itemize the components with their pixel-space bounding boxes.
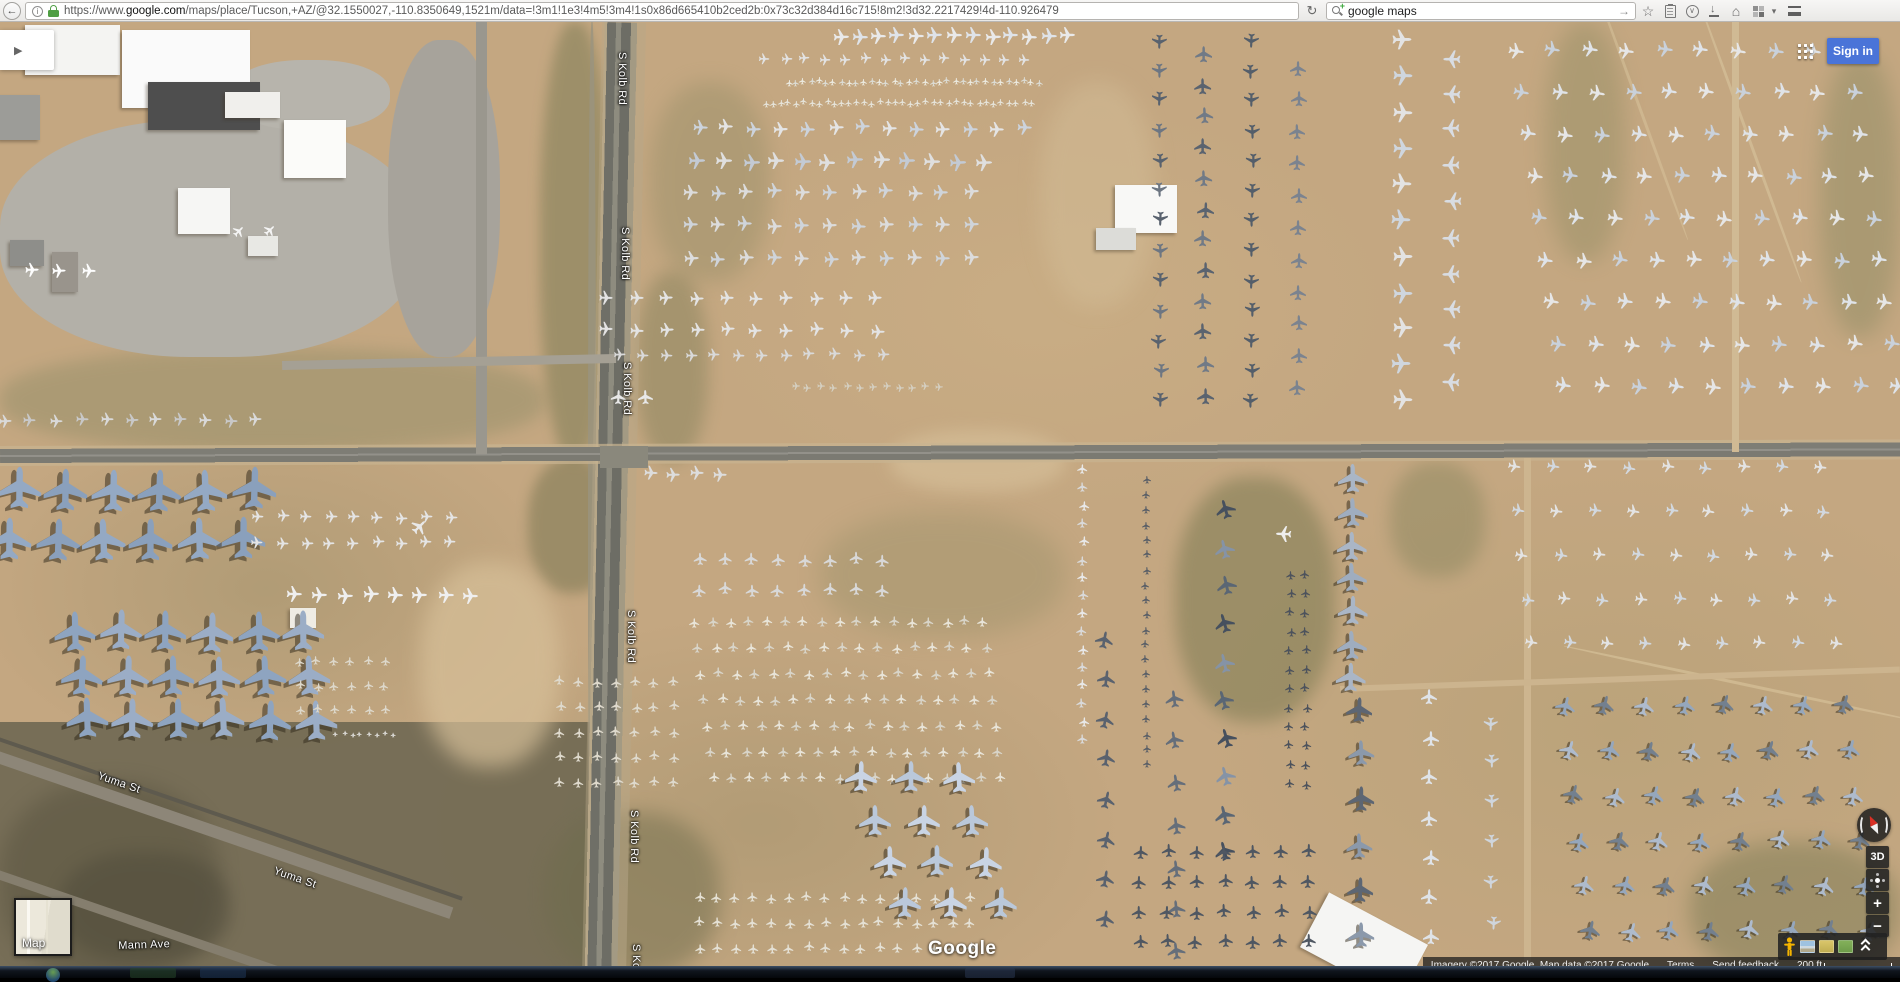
- google-watermark[interactable]: Google: [928, 938, 996, 960]
- home-icon[interactable]: ⌂: [1726, 0, 1746, 22]
- terrain-patch: [1175, 477, 1335, 722]
- my-location-button[interactable]: [1866, 869, 1889, 891]
- imagery-thumbnail-sky[interactable]: [1800, 940, 1815, 953]
- reload-icon: ↻: [1307, 3, 1318, 19]
- street-label: S Kolb Rd: [616, 52, 628, 105]
- street-label: Mann Ave: [118, 938, 170, 952]
- menu-button[interactable]: [1784, 0, 1804, 22]
- back-arrow-icon: ←: [7, 6, 18, 17]
- street-label: S Kolb Rd: [630, 944, 642, 966]
- zoom-in-button[interactable]: +: [1866, 892, 1889, 914]
- taskbar-item: [200, 968, 246, 978]
- imagery-thumbnail-field[interactable]: [1819, 940, 1834, 953]
- map-mode-toggle[interactable]: Map: [14, 898, 72, 956]
- imagery-thumbnail-green[interactable]: [1838, 940, 1853, 953]
- url-bar[interactable]: i https://www.google.com/maps/place/Tucs…: [25, 2, 1299, 20]
- pegman-icon[interactable]: [1783, 937, 1796, 957]
- url-text: https://www.google.com/maps/place/Tucson…: [64, 5, 1059, 17]
- search-input[interactable]: [1348, 4, 1614, 18]
- pocket-icon[interactable]: ∨: [1682, 0, 1702, 22]
- road: [476, 22, 487, 454]
- 3d-view-button[interactable]: 3D: [1866, 846, 1889, 868]
- road: [600, 446, 648, 468]
- street-label: S Kolb Rd: [619, 227, 631, 280]
- page-info-icon[interactable]: i: [32, 6, 43, 17]
- expand-search-panel-button[interactable]: ▶: [0, 30, 54, 70]
- bookmarks-clipboard-icon[interactable]: [1660, 0, 1680, 22]
- taskbar-item: [965, 968, 1015, 978]
- attribution-bar: Imagery ©2017 Google, Map data ©2017 Goo…: [1423, 957, 1900, 966]
- start-orb-icon: [46, 968, 60, 982]
- taskbar-item: [130, 968, 176, 978]
- imagery-carousel: [1778, 933, 1887, 960]
- compass-control[interactable]: [1857, 808, 1891, 842]
- building: [1096, 228, 1136, 250]
- map-toggle-label: Map: [22, 936, 45, 950]
- building: [284, 120, 346, 178]
- terrain-patch: [1390, 462, 1485, 577]
- search-go-icon[interactable]: →: [1618, 4, 1630, 18]
- map-canvas[interactable]: S Kolb RdS Kolb RdS Kolb RdS Kolb RdS Ko…: [0, 22, 1900, 966]
- reload-button[interactable]: ↻: [1303, 0, 1321, 22]
- google-apps-grid-icon[interactable]: [1798, 44, 1813, 59]
- search-icon[interactable]: +: [1332, 5, 1344, 17]
- terrain-patch: [1697, 22, 1802, 283]
- bookmark-star-icon[interactable]: ☆: [1638, 0, 1658, 22]
- road: [1524, 458, 1531, 966]
- tab-groups-icon[interactable]: [1748, 0, 1768, 22]
- building: [225, 92, 280, 118]
- dropdown-caret-icon[interactable]: ▾: [1768, 0, 1780, 22]
- street-label: S Kolb Rd: [625, 610, 637, 663]
- secure-lock-icon[interactable]: [48, 5, 59, 17]
- downloads-icon[interactable]: [1704, 0, 1724, 22]
- expand-arrow-icon: ▶: [14, 44, 22, 57]
- building: [0, 95, 40, 140]
- street-label: S Kolb Rd: [621, 362, 633, 415]
- taskbar-strip: [0, 966, 1900, 978]
- building: [248, 236, 278, 256]
- sign-in-button[interactable]: Sign in: [1827, 38, 1879, 64]
- collapse-chevrons-icon[interactable]: [1860, 940, 1872, 954]
- terrain-patch: [0, 120, 420, 357]
- street-label: S Kolb Rd: [628, 810, 640, 863]
- back-button[interactable]: ←: [3, 2, 21, 20]
- add-search-engine-icon: +: [1340, 2, 1345, 11]
- building: [178, 188, 230, 234]
- browser-toolbar: ← i https://www.google.com/maps/place/Tu…: [0, 0, 1900, 22]
- search-box[interactable]: + →: [1326, 2, 1636, 20]
